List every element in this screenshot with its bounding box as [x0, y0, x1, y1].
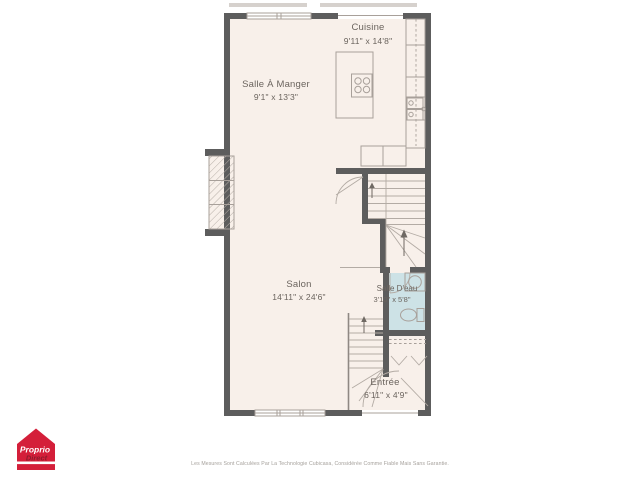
- room-label-salle-a-manger: Salle À Manger: [242, 79, 310, 90]
- room-label-salon: Salon: [286, 279, 311, 290]
- fireplace-icon: [209, 156, 234, 229]
- wall-top-seg: [224, 13, 247, 19]
- proprio-direct-logo: Proprio Direct: [17, 429, 55, 471]
- logo-text-direct: Direct: [26, 454, 48, 463]
- room-dims-entree: 6'11" x 4'9": [364, 390, 408, 400]
- wall-bottom-seg: [224, 410, 255, 416]
- floor-plan-page: Cuisine 9'11" x 14'8" Salle À Manger 9'1…: [0, 0, 640, 480]
- wall-stair-right: [380, 224, 386, 273]
- room-label-cuisine: Cuisine: [351, 22, 384, 33]
- wall-bottom-seg: [325, 410, 362, 416]
- wall-top-seg: [403, 13, 431, 19]
- deck-outline: [229, 3, 417, 7]
- wall-kitchen-hall: [336, 168, 425, 174]
- floor-area: [209, 19, 425, 410]
- room-dims-salle-deau: 3'10" x 5'8": [374, 295, 411, 304]
- wall-right: [425, 13, 431, 416]
- main-floor: [230, 19, 425, 410]
- wall-top-seg: [311, 13, 338, 19]
- fireplace-stub-top: [205, 149, 224, 156]
- disclaimer-text: Les Mesures Sont Calculées Par La Techno…: [191, 461, 449, 467]
- deck-segment: [229, 3, 307, 7]
- fireplace: [209, 156, 234, 229]
- deck-segment: [320, 3, 417, 7]
- wall-bath-top-seg: [380, 267, 390, 273]
- wall-bath-top-seg: [410, 267, 425, 273]
- room-dims-cuisine: 9'11" x 14'8": [344, 36, 393, 46]
- floor-plan: Cuisine 9'11" x 14'8" Salle À Manger 9'1…: [0, 0, 640, 480]
- fireplace-stub-bottom: [205, 229, 224, 236]
- wall-stair-left: [362, 174, 368, 224]
- room-dims-salle-a-manger: 9'1" x 13'3": [254, 92, 298, 102]
- room-dims-salon: 14'11" x 24'6": [272, 292, 326, 302]
- wall-bottom-seg: [418, 410, 431, 416]
- room-label-entree: Entrée: [370, 377, 399, 388]
- room-label-salle-deau: Salle D'eau: [377, 284, 418, 293]
